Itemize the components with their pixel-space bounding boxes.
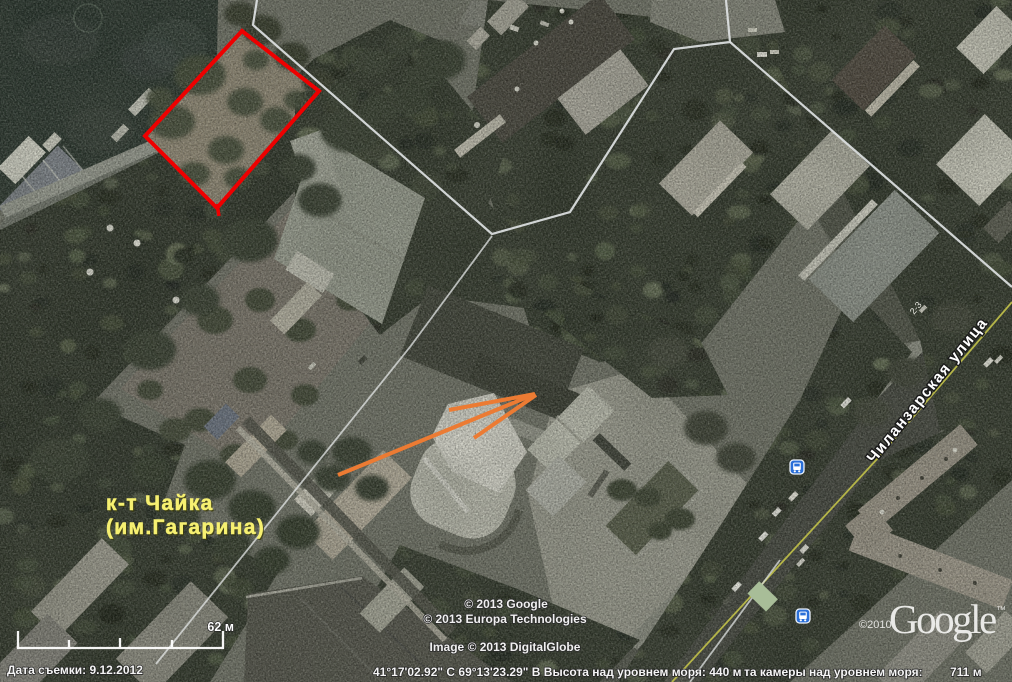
svg-text:™: ™: [996, 605, 1006, 616]
svg-text:Image © 2013 DigitalGlobe: Image © 2013 DigitalGlobe: [430, 640, 581, 654]
svg-text:к-т Чайка: к-т Чайка: [106, 492, 214, 515]
svg-text:711 м: 711 м: [950, 665, 982, 679]
svg-text:та камеры над уровнем моря:: та камеры над уровнем моря:: [744, 665, 923, 679]
svg-text:(им.Гагарина): (им.Гагарина): [106, 516, 265, 539]
svg-text:© 2013 Europa Technologies: © 2013 Europa Technologies: [423, 612, 587, 626]
svg-text:62 м: 62 м: [207, 620, 234, 634]
svg-text:Дата съемки: 9.12.2012: Дата съемки: 9.12.2012: [7, 663, 143, 677]
svg-text:© 2013 Google: © 2013 Google: [464, 597, 548, 611]
svg-text:41°17'02.92" С 69°13'23.29" В: 41°17'02.92" С 69°13'23.29" В Высота над…: [373, 665, 742, 679]
svg-text:©2010: ©2010: [859, 619, 892, 631]
svg-text:Google: Google: [889, 596, 996, 642]
